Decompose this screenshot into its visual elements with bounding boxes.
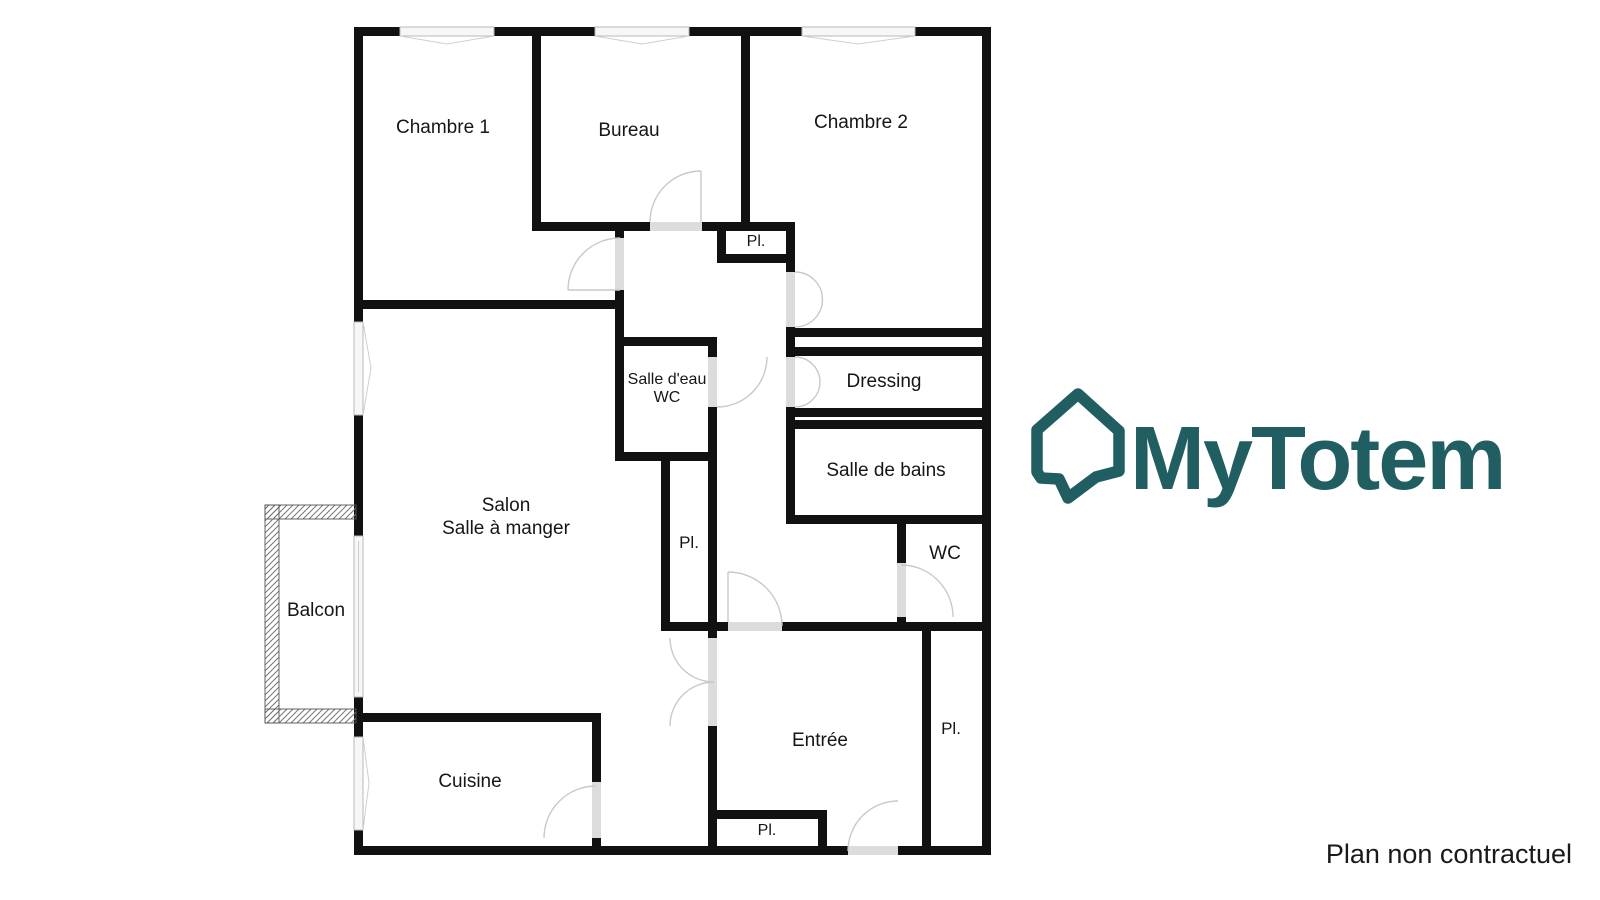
plan-disclaimer: Plan non contractuel — [1326, 838, 1572, 870]
room-label-salle-eau-wc: WC — [654, 389, 681, 407]
room-label-salle-de-bains: Salle de bains — [826, 460, 945, 482]
room-label-bureau: Bureau — [598, 120, 659, 142]
balcony-wall-bottom — [265, 709, 356, 723]
page: { "floor_plan": { "rooms": { "chambre1":… — [0, 0, 1600, 900]
room-label-closet-top: Pl. — [747, 233, 766, 251]
window-salon — [354, 322, 363, 415]
room-label-closet-bottom: Pl. — [758, 822, 777, 840]
balcony-wall-left — [265, 505, 279, 723]
window-cuisine — [354, 737, 363, 830]
logo-wordmark: MyTotem — [1130, 414, 1504, 504]
window-chambre2 — [802, 27, 915, 36]
room-label-cuisine: Cuisine — [438, 771, 501, 793]
room-label-chambre1: Chambre 1 — [396, 117, 490, 139]
room-label-wc: WC — [929, 543, 961, 565]
room-label-balcon: Balcon — [287, 600, 345, 622]
window-chambre1 — [400, 27, 494, 36]
door-swings-group — [544, 171, 953, 851]
room-label-salle-eau: Salle d'eau — [628, 371, 707, 389]
room-label-closet-right: Pl. — [941, 719, 961, 739]
logo-house-icon — [1037, 394, 1119, 498]
room-label-salon: Salon — [482, 495, 531, 517]
outer-wall-right — [982, 27, 991, 855]
room-label-dressing: Dressing — [847, 371, 922, 393]
room-label-entree: Entrée — [792, 730, 848, 752]
room-label-salle-a-manger: Salle à manger — [442, 518, 570, 540]
room-label-chambre2: Chambre 2 — [814, 112, 908, 134]
outer-wall-left — [354, 27, 363, 855]
door-openings-group — [592, 222, 906, 855]
walls-group — [354, 27, 991, 855]
room-label-closet-center: Pl. — [679, 533, 699, 553]
window-bureau — [595, 27, 689, 36]
